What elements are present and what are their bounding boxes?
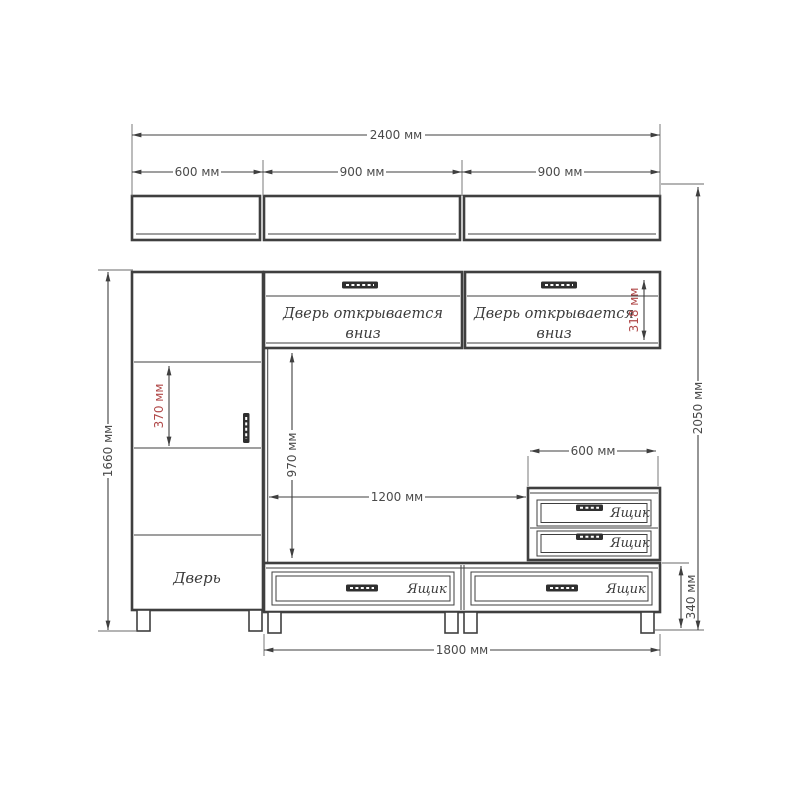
dim-drawer-row-height-label: 340 мм: [684, 575, 698, 620]
dimension-base-width: 1800 мм: [264, 634, 660, 657]
wall-shelf-left: [132, 196, 260, 240]
flap-cabinet-left: Дверь открывается вниз: [264, 272, 462, 348]
dim-drawer-unit-width-label: 600 мм: [571, 444, 616, 458]
tall-cabinet: Дверь: [132, 272, 263, 631]
dimension-niche-width: 1200 мм: [269, 490, 526, 504]
side-drawer-1-label: Ящик: [609, 506, 650, 521]
dim-base-width-label: 1800 мм: [436, 643, 488, 657]
dimension-shelf-widths: 600 мм 900 мм 900 мм: [132, 160, 660, 196]
wall-shelves: [132, 196, 660, 240]
base-drawer-left-label: Ящик: [406, 582, 447, 597]
dim-shelf-center-label: 900 мм: [340, 165, 385, 179]
base-leg-1: [268, 612, 281, 633]
dim-niche-width-label: 1200 мм: [371, 490, 423, 504]
base-drawer-right-label: Ящик: [605, 582, 646, 597]
dimension-total-width: 2400 мм: [132, 124, 660, 196]
flap-right-label-line1: Дверь открывается: [473, 306, 634, 322]
base-leg-2: [445, 612, 458, 633]
base-leg-3: [464, 612, 477, 633]
niche: 970 мм 1200 мм: [265, 349, 526, 562]
wall-shelf-right: [464, 196, 660, 240]
flap-left-label-line1: Дверь открывается: [282, 306, 443, 322]
dim-shelf-section-label: 370 мм: [152, 384, 166, 429]
furniture-dimension-drawing: 2400 мм 600 мм 900 мм 900 мм Дверь: [0, 0, 800, 800]
dim-cabinet-height-label: 1660 мм: [101, 425, 115, 477]
base-drawer-row: Ящик Ящик: [264, 563, 660, 633]
base-leg-4: [641, 612, 654, 633]
dimension-niche-height: 970 мм: [285, 353, 299, 558]
side-drawer-2-label: Ящик: [609, 536, 650, 551]
tall-cabinet-door-label: Дверь: [172, 569, 221, 587]
flap-right-label-line2: вниз: [536, 326, 571, 342]
tall-cabinet-leg-left: [137, 610, 150, 631]
dimension-drawer-unit-width: 600 мм: [528, 444, 658, 486]
dim-total-width-label: 2400 мм: [370, 128, 422, 142]
wall-shelf-center: [264, 196, 460, 240]
dim-shelf-right-label: 900 мм: [538, 165, 583, 179]
flap-cabinet-right: Дверь открывается вниз 318 мм: [465, 272, 660, 348]
dim-shelf-left-label: 600 мм: [175, 165, 220, 179]
dim-overall-height-label: 2050 мм: [691, 382, 705, 434]
dim-flap-height-label: 318 мм: [627, 288, 641, 333]
flap-left-label-line2: вниз: [345, 326, 380, 342]
dim-niche-height-label: 970 мм: [285, 433, 299, 478]
drawing-canvas: 2400 мм 600 мм 900 мм 900 мм Дверь: [0, 0, 800, 800]
tall-cabinet-leg-right: [249, 610, 262, 631]
dimension-drawer-row-height: 340 мм: [662, 563, 698, 628]
side-drawer-unit: Ящик Ящик 600 мм: [528, 444, 660, 560]
